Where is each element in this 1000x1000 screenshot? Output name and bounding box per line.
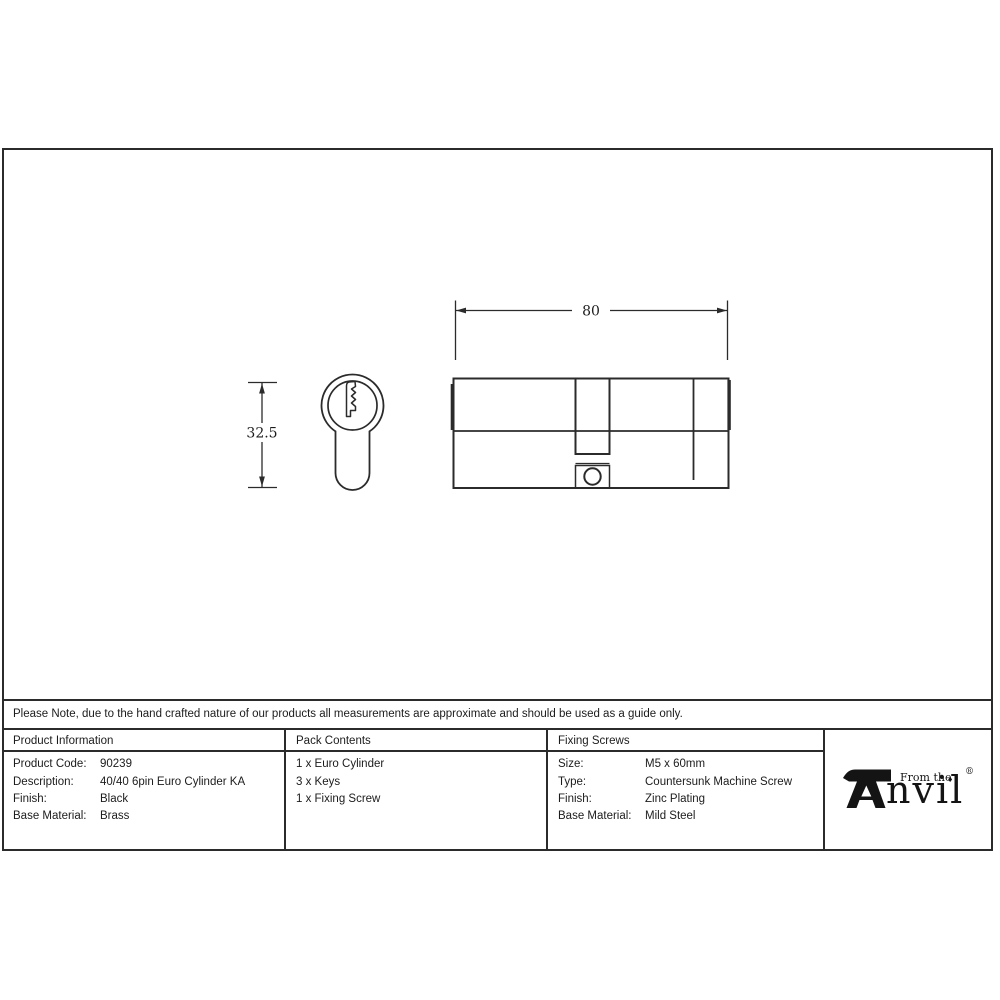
spec-sheet-page: 80 32.5 (0, 0, 1000, 1000)
fixing-screw-hole (584, 468, 600, 484)
product-code-value: 90239 (100, 757, 132, 771)
cylinder-side-view (451, 379, 731, 489)
header-bottom-border (4, 750, 823, 752)
finish-value: Black (100, 792, 128, 806)
technical-drawing: 80 32.5 (230, 290, 750, 505)
anvil-icon (842, 762, 892, 810)
registered-trademark-icon: ® (965, 767, 974, 777)
header-product-information: Product Information (13, 734, 113, 748)
width-dimension-label: 80 (582, 304, 600, 320)
screw-finish-value: Zinc Plating (645, 792, 705, 806)
pack-item: 1 x Fixing Screw (296, 792, 380, 806)
header-fixing-screws: Fixing Screws (558, 734, 630, 748)
column-divider-3 (823, 730, 825, 849)
screw-finish-label: Finish: (558, 792, 592, 806)
note-row-top-border (2, 699, 993, 701)
description-value: 40/40 6pin Euro Cylinder KA (100, 775, 245, 789)
keyhole-icon (347, 382, 356, 417)
logo-wordmark: nvil (886, 771, 964, 809)
pack-item: 3 x Keys (296, 775, 340, 789)
height-dimension-label: 32.5 (246, 426, 277, 442)
screw-base-material-value: Mild Steel (645, 809, 696, 823)
column-divider-1 (284, 730, 286, 849)
height-dimension: 32.5 (240, 383, 284, 488)
measurement-note: Please Note, due to the hand crafted nat… (13, 707, 683, 721)
column-divider-2 (546, 730, 548, 849)
header-pack-contents: Pack Contents (296, 734, 371, 748)
finish-label: Finish: (13, 792, 47, 806)
screw-type-label: Type: (558, 775, 586, 789)
cylinder-face-view (322, 374, 384, 490)
table-top-border (2, 728, 993, 730)
screw-type-value: Countersunk Machine Screw (645, 775, 792, 789)
brand-logo: From the ♦ nvil ® (826, 731, 991, 849)
pack-item: 1 x Euro Cylinder (296, 757, 384, 771)
description-label: Description: (13, 775, 74, 789)
width-dimension: 80 (456, 300, 728, 360)
screw-size-value: M5 x 60mm (645, 757, 705, 771)
base-material-value: Brass (100, 809, 129, 823)
product-code-label: Product Code: (13, 757, 87, 771)
screw-size-label: Size: (558, 757, 584, 771)
screw-base-material-label: Base Material: (558, 809, 632, 823)
base-material-label: Base Material: (13, 809, 87, 823)
